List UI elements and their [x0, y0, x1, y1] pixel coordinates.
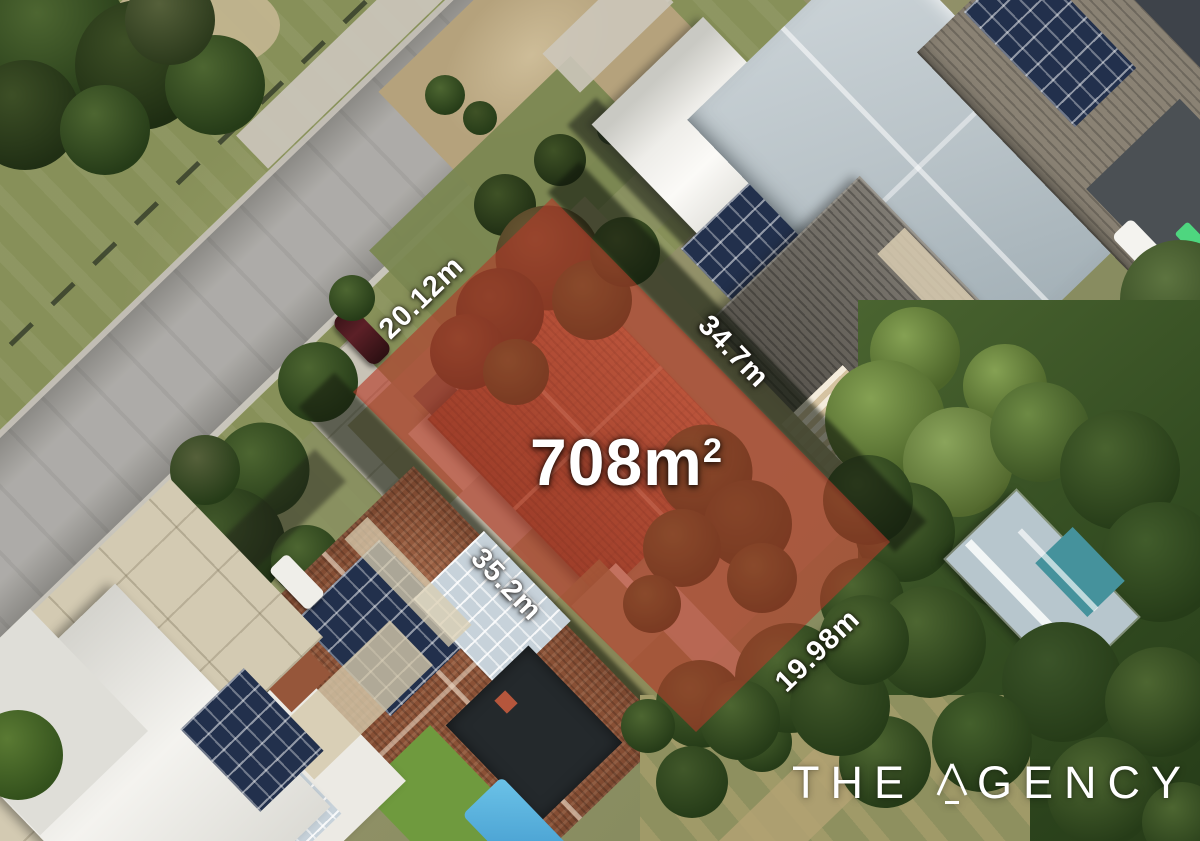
area-superscript: 2	[703, 432, 722, 470]
tree-canopy	[656, 746, 728, 818]
area-value: 708m	[530, 425, 703, 499]
shrub	[425, 75, 465, 115]
tree-canopy	[60, 85, 150, 175]
area-label: 708m2	[530, 424, 722, 500]
agency-logo-the: THE	[792, 760, 915, 805]
agency-logo-a-mark	[935, 763, 969, 805]
shrub	[463, 101, 497, 135]
agency-logo: THE GENCY	[792, 760, 1192, 805]
tree-canopy	[329, 275, 375, 321]
aerial-photo-backdrop: 20.12m 34.7m 35.2m 19.98m 708m2 THE GENC…	[0, 0, 1200, 841]
tree-canopy	[621, 699, 675, 753]
agency-logo-gency: GENCY	[977, 760, 1192, 805]
